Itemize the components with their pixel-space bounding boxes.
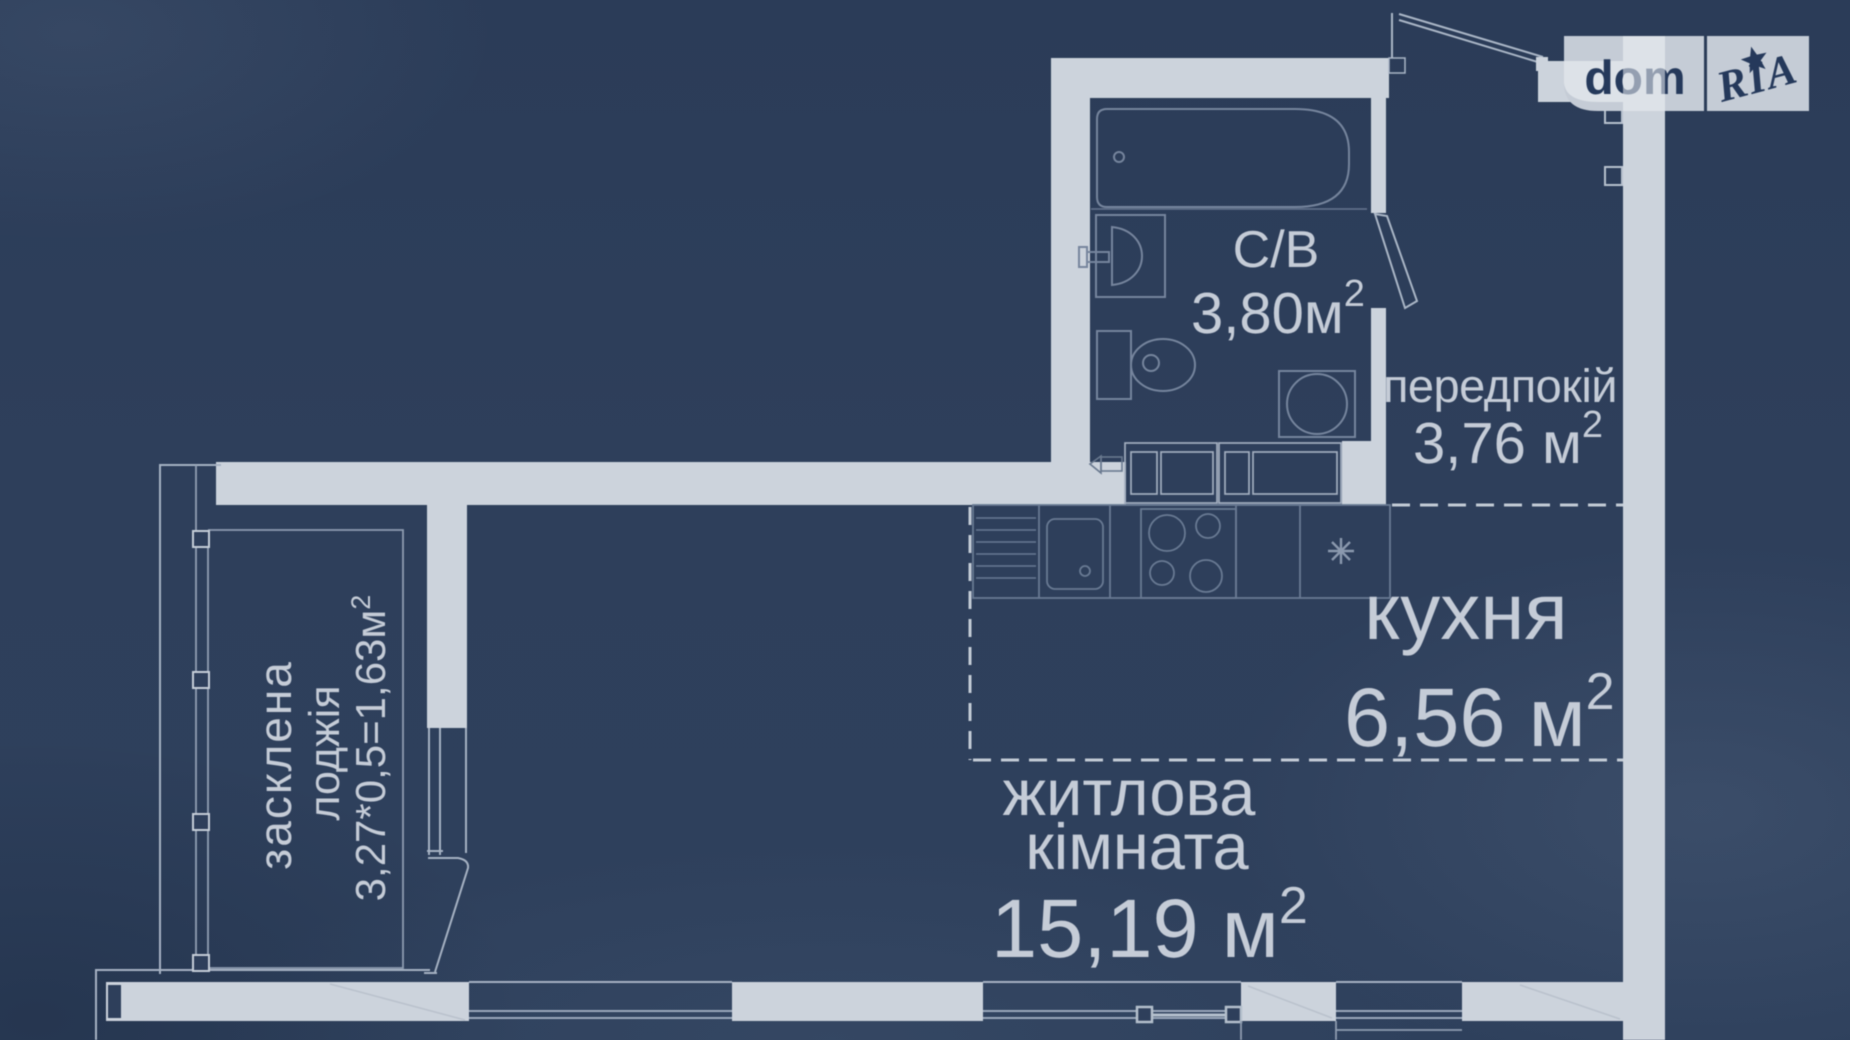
svg-text:кухня: кухня — [1364, 567, 1567, 656]
svg-text:С/В: С/В — [1233, 221, 1320, 279]
svg-text:3,80м2: 3,80м2 — [1191, 273, 1365, 346]
svg-text:лоджія: лоджія — [301, 685, 349, 820]
svg-text:3,27*0,5=1,63м2: 3,27*0,5=1,63м2 — [346, 595, 394, 902]
svg-text:6,56 м2: 6,56 м2 — [1344, 663, 1615, 764]
svg-text:засклена: засклена — [249, 660, 301, 870]
svg-text:3,76 м2: 3,76 м2 — [1413, 404, 1603, 476]
svg-text:15,19 м2: 15,19 м2 — [991, 877, 1308, 975]
svg-text:кімната: кімната — [1025, 810, 1249, 883]
